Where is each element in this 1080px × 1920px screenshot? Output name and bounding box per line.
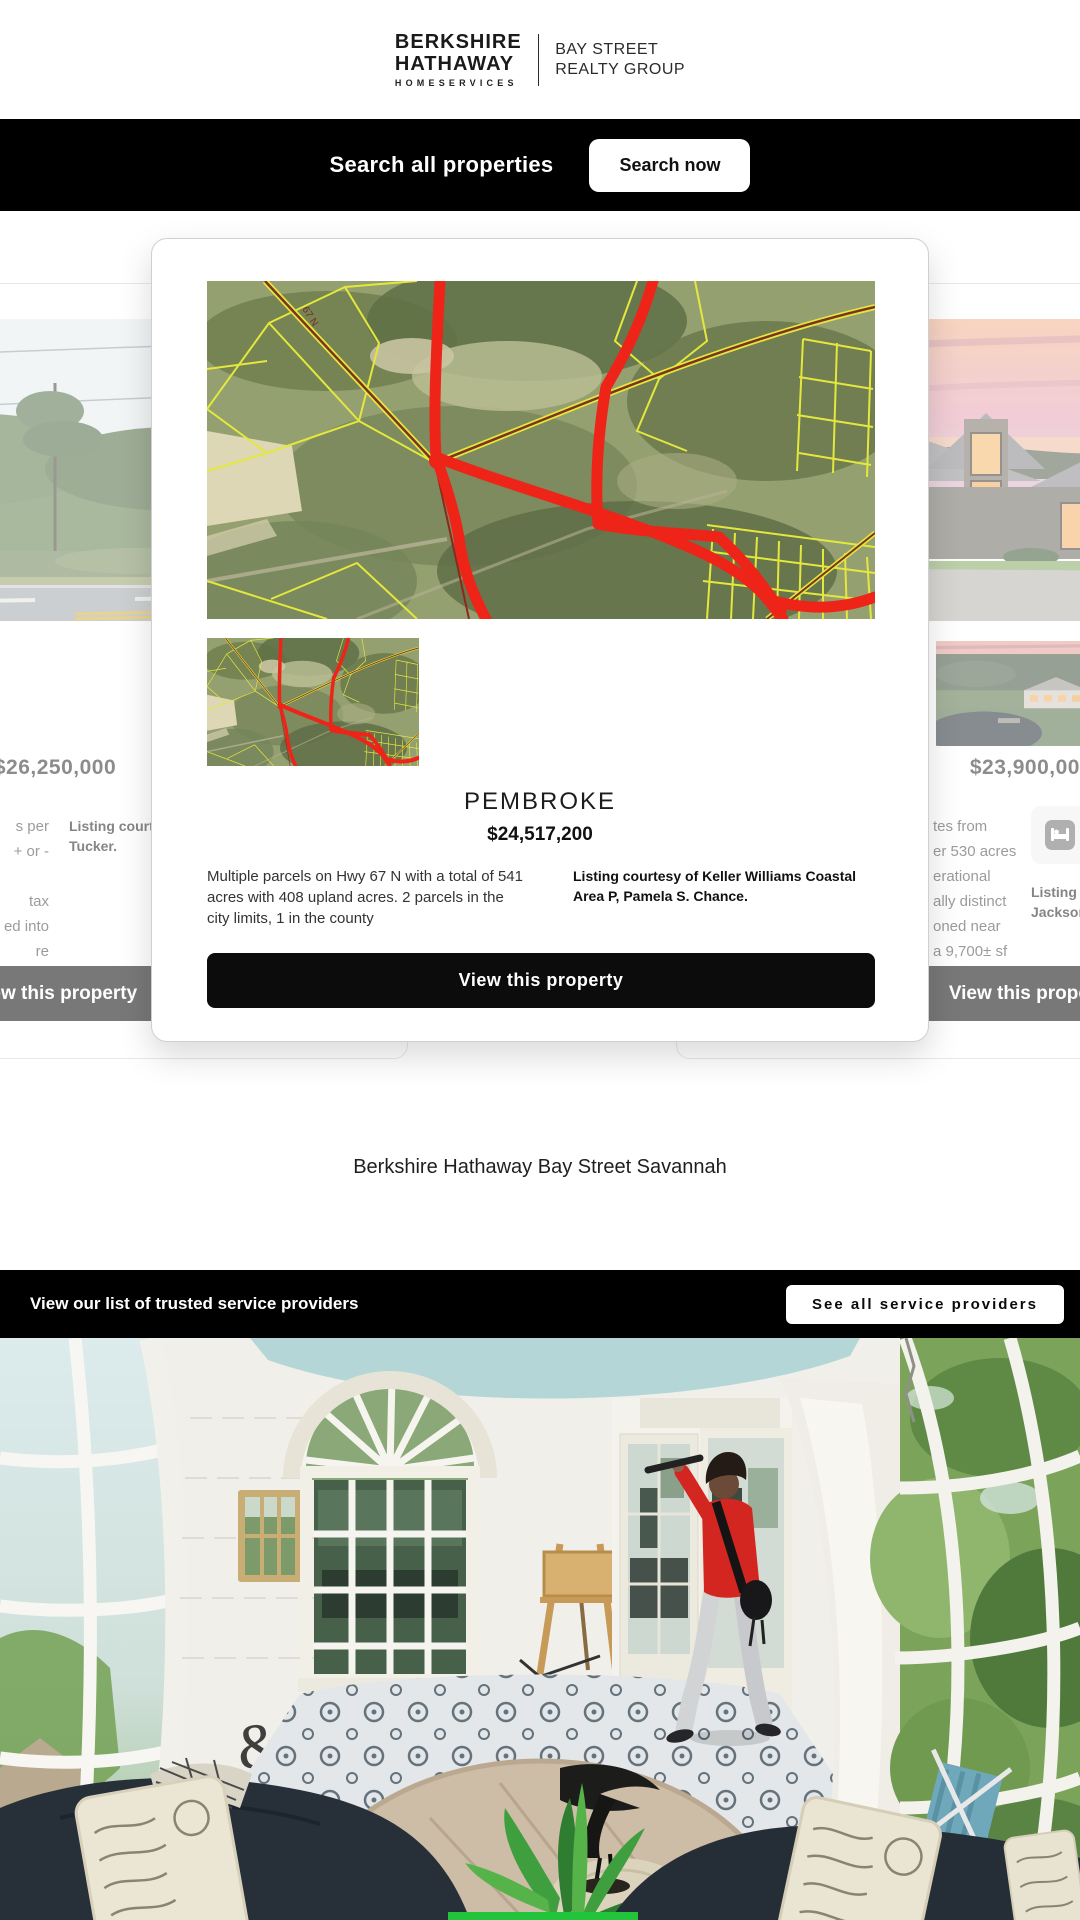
left-script-pillow (74, 1774, 251, 1920)
brand-name-line2: HATHAWAY (395, 53, 522, 75)
property-map-image: 67 N (207, 281, 875, 619)
property-map-thumbnail[interactable] (207, 638, 419, 766)
brand-logo[interactable]: BERKSHIRE HATHAWAY HOMESERVICES BAY STRE… (395, 31, 685, 88)
video-progress-bar[interactable] (448, 1912, 638, 1920)
brand-subtitle: HOMESERVICES (395, 78, 522, 88)
listing-courtesy: Listing courtesy of Keller Williams Coas… (573, 866, 873, 929)
far-right-pillow (1003, 1829, 1080, 1920)
property-description: Multiple parcels on Hwy 67 N with a tota… (207, 866, 527, 929)
virtual-tour-photo: & (0, 1338, 1080, 1920)
property-title: PEMBROKE (207, 788, 873, 816)
service-providers-bar: View our list of trusted service provide… (0, 1270, 1080, 1338)
site-header: BERKSHIRE HATHAWAY HOMESERVICES BAY STRE… (0, 0, 1080, 119)
property-price: $24,517,200 (207, 824, 873, 846)
page: BERKSHIRE HATHAWAY HOMESERVICES BAY STRE… (0, 0, 1080, 1920)
property-details: Multiple parcels on Hwy 67 N with a tota… (207, 866, 873, 929)
search-now-button[interactable]: Search now (589, 139, 750, 192)
brand-logo-left: BERKSHIRE HATHAWAY HOMESERVICES (395, 31, 522, 88)
property-detail-modal: 67 N PEMBROKE $24,517,200 Multiple parce… (151, 238, 929, 1042)
logo-divider (538, 34, 540, 86)
see-all-service-providers-button[interactable]: See all service providers (786, 1285, 1064, 1324)
view-property-button[interactable]: View this property (207, 953, 875, 1008)
service-providers-label: View our list of trusted service provide… (30, 1294, 358, 1314)
brand-name-line1: BERKSHIRE (395, 31, 522, 53)
virtual-tour-viewer[interactable]: & (0, 1338, 1080, 1920)
location-caption: Berkshire Hathaway Bay Street Savannah (0, 1156, 1080, 1179)
search-banner-label: Search all properties (330, 152, 554, 178)
division-line1: BAY STREET (555, 40, 685, 60)
arched-window (292, 1376, 488, 1692)
wall-mirror (238, 1490, 302, 1582)
brand-division: BAY STREET REALTY GROUP (555, 40, 685, 80)
division-line2: REALTY GROUP (555, 60, 685, 80)
search-banner: Search all properties Search now (0, 119, 1080, 211)
